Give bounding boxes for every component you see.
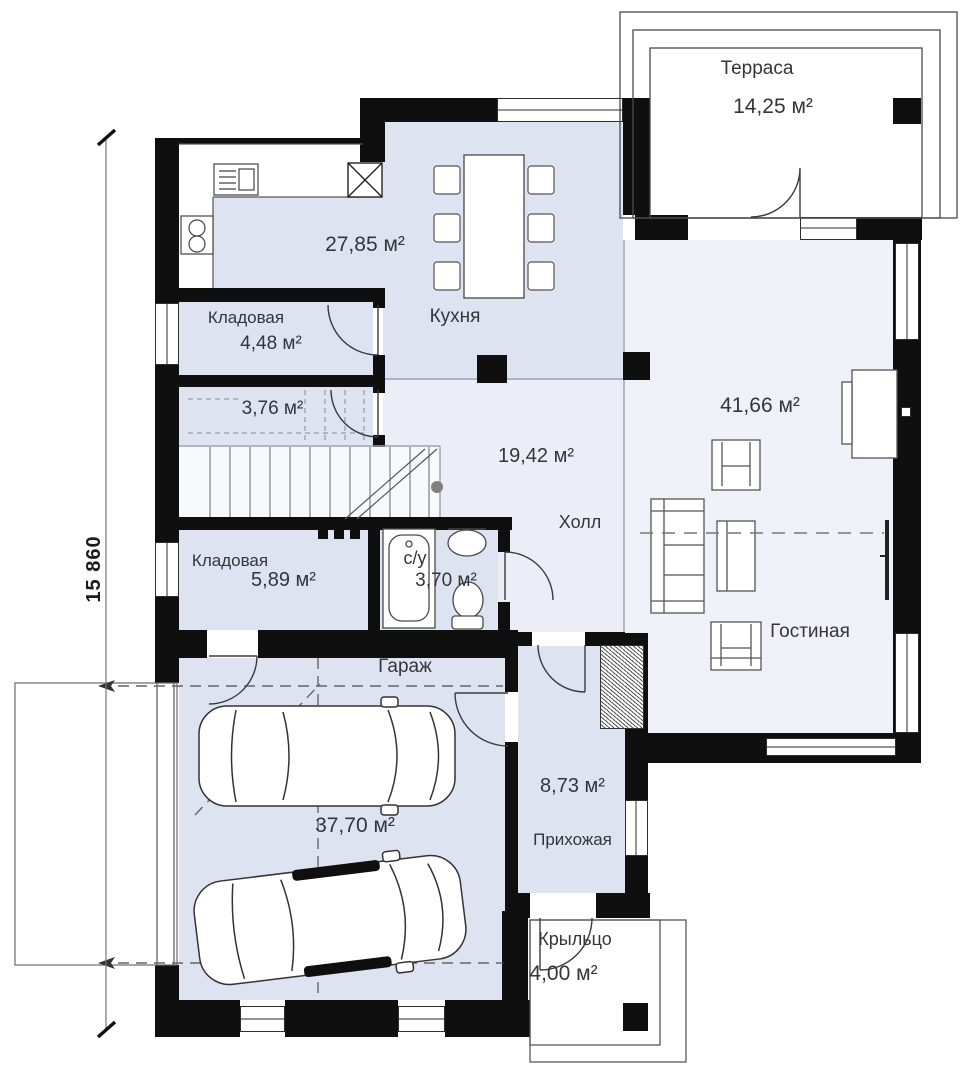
wall: [373, 288, 385, 308]
room-area-hall: 19,42 м²: [456, 445, 616, 468]
driveway-outline: [15, 683, 177, 965]
wall: [155, 1000, 240, 1037]
room-area-pantry-bottom: 5,89 м²: [206, 569, 361, 592]
wall: [635, 215, 688, 240]
wall: [518, 632, 532, 646]
room-area-wc: 3,70 м²: [386, 570, 506, 592]
stair-zone: [179, 445, 440, 517]
wall: [373, 355, 385, 375]
window: [240, 1006, 285, 1032]
room-area-entry: 8,73 м²: [500, 775, 645, 798]
window: [895, 243, 919, 340]
wall-pillar: [477, 355, 507, 383]
wall: [373, 387, 385, 393]
wall-niche: [350, 529, 360, 539]
wall-niche: [334, 529, 344, 539]
room-area-pantry-top: 4,48 м²: [196, 333, 346, 355]
wall: [445, 1000, 530, 1037]
room-area-understair: 3,76 м²: [195, 398, 350, 420]
wall: [383, 98, 497, 122]
wall: [623, 98, 650, 215]
room-area-living: 41,66 м²: [675, 394, 845, 418]
window: [895, 633, 919, 733]
wall: [155, 288, 385, 302]
kitchen-counter: [179, 197, 213, 288]
kitchen-counter: [179, 144, 363, 197]
room-area-porch: 4,00 м²: [496, 962, 631, 986]
wall: [505, 630, 518, 692]
dimension-label: 15 860: [83, 523, 109, 615]
room-label-kitchen: Кухня: [380, 306, 530, 328]
room-label-wc: с/у: [380, 548, 450, 569]
wall: [360, 98, 385, 162]
radiator-hatch: [600, 645, 644, 729]
guide-arrowheads: [98, 680, 115, 969]
room-label-pantry-bottom: Кладовая: [155, 551, 305, 571]
wall: [155, 365, 179, 542]
window: [497, 98, 623, 122]
room-area-terrace: 14,25 м²: [688, 95, 858, 119]
room-label-hall: Холл: [520, 512, 640, 533]
window: [800, 217, 857, 240]
garage-door: [157, 683, 174, 965]
wall-pillar: [623, 1003, 648, 1031]
wall: [155, 375, 385, 387]
window: [901, 407, 911, 417]
wall: [179, 138, 363, 144]
wall-niche: [318, 529, 328, 539]
wall: [155, 630, 207, 658]
window: [398, 1006, 445, 1032]
window: [766, 738, 896, 756]
wall: [498, 602, 510, 630]
room-label-porch: Крыльцо: [510, 929, 640, 950]
room-label-living: Гостиная: [730, 621, 890, 643]
room-label-garage: Гараж: [330, 656, 480, 678]
wall: [368, 530, 380, 630]
room-area-garage: 37,70 м²: [270, 814, 440, 838]
wall: [155, 138, 179, 305]
wall: [285, 1000, 398, 1037]
wall: [373, 435, 385, 447]
wall: [893, 98, 921, 124]
wall: [596, 893, 650, 918]
room-label-pantry-top: Кладовая: [171, 308, 321, 328]
wall: [498, 530, 510, 552]
room-label-terrace: Терраса: [677, 58, 837, 80]
room-label-entry: Прихожая: [505, 830, 640, 850]
wall: [585, 632, 625, 646]
room-floor-living: [623, 240, 893, 733]
wall: [258, 630, 518, 658]
floor-plan: Терраса 14,25 м² 27,85 м² Кухня Кладовая…: [0, 0, 967, 1080]
wall-pillar: [623, 352, 650, 380]
room-area-kitchen: 27,85 м²: [280, 233, 450, 257]
